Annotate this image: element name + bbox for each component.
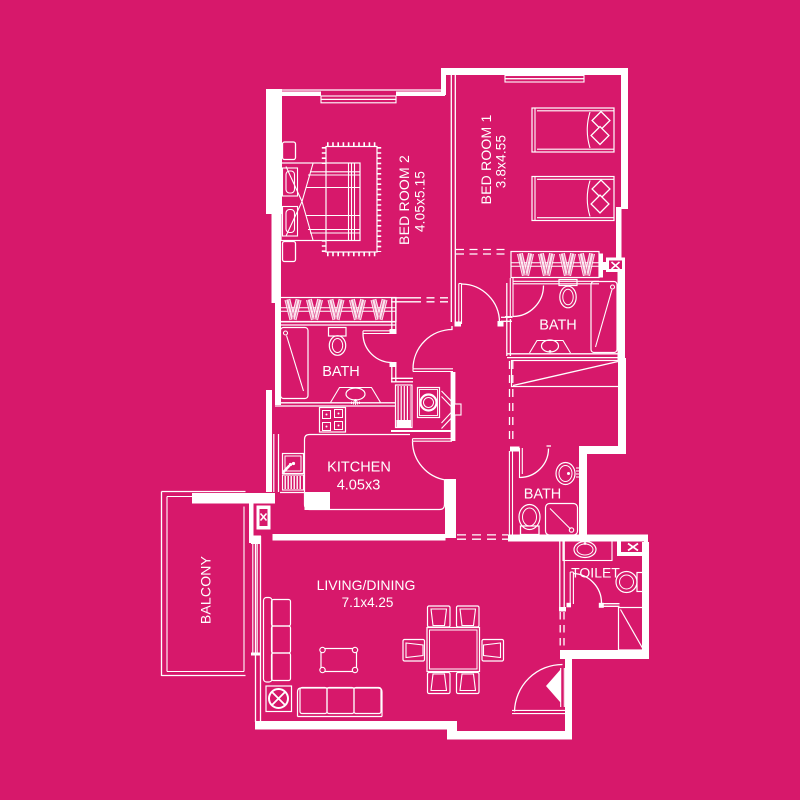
- svg-text:LIVING/DINING: LIVING/DINING: [317, 577, 416, 593]
- svg-text:BATH: BATH: [524, 487, 562, 503]
- svg-text:3.8x4.55: 3.8x4.55: [494, 135, 509, 188]
- svg-text:BATH: BATH: [539, 318, 577, 334]
- svg-text:7.1x4.25: 7.1x4.25: [342, 595, 394, 610]
- svg-text:BED ROOM 1: BED ROOM 1: [478, 115, 494, 205]
- svg-text:KITCHEN: KITCHEN: [327, 460, 391, 476]
- svg-text:BATH: BATH: [322, 364, 360, 380]
- svg-text:TOILET: TOILET: [571, 565, 620, 581]
- svg-text:4.05x3: 4.05x3: [337, 478, 381, 494]
- svg-text:BED ROOM 2: BED ROOM 2: [396, 155, 412, 245]
- svg-text:4.05x5.15: 4.05x5.15: [413, 171, 428, 232]
- svg-text:BALCONY: BALCONY: [198, 555, 214, 624]
